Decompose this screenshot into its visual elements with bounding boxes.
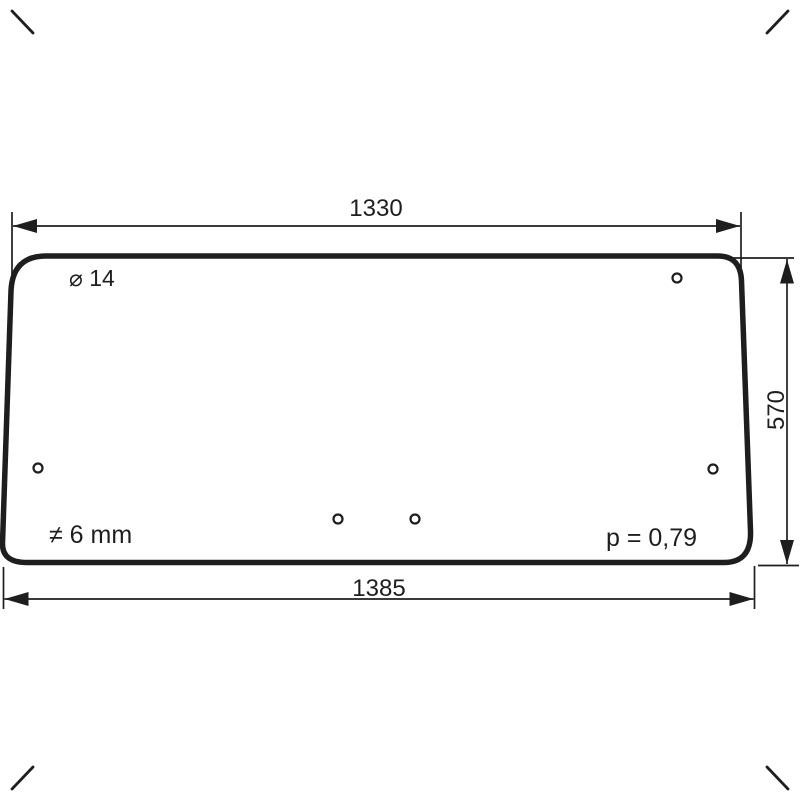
hole <box>411 515 420 524</box>
right-height-value: 570 <box>763 390 790 430</box>
corner-mark-bottom-left <box>12 767 33 789</box>
corner-mark-top-right <box>767 11 788 33</box>
arrow-up-icon <box>780 260 794 284</box>
arrow-left-icon <box>13 219 37 233</box>
arrow-right-icon <box>716 219 740 233</box>
corner-mark-bottom-right <box>767 767 788 789</box>
bottom-width-value: 1385 <box>352 575 405 602</box>
thickness-label: ≠ 6 mm <box>49 521 132 549</box>
hole <box>709 465 718 474</box>
hole <box>673 274 682 283</box>
top-width-value: 1330 <box>349 195 402 222</box>
hole-diameter-label: ⌀ 14 <box>69 265 115 291</box>
glass-panel-outline <box>2 256 750 563</box>
corner-mark-top-left <box>12 11 33 33</box>
arrow-down-icon <box>780 540 794 564</box>
glass-panel-diagram: 1330 570 1385 ⌀ 14 ≠ 6 mm p = 0,79 <box>0 0 800 800</box>
arrow-right-icon <box>730 592 754 606</box>
arrow-left-icon <box>5 592 29 606</box>
weight-factor-label: p = 0,79 <box>606 524 697 552</box>
hole <box>334 515 343 524</box>
hole <box>34 464 43 473</box>
dimension-bottom-width: 1385 <box>4 566 755 609</box>
technical-drawing-page: 1330 570 1385 ⌀ 14 ≠ 6 mm p = 0,79 <box>0 0 800 800</box>
